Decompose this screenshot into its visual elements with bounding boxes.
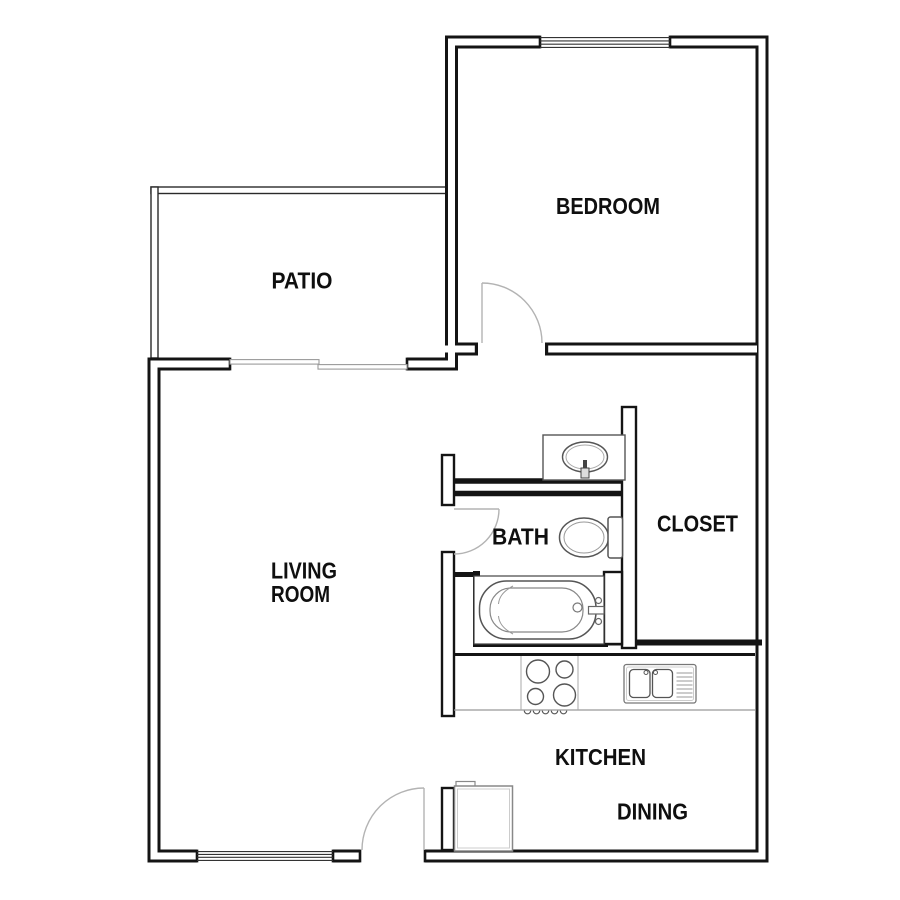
bathtub-icon: [474, 576, 604, 644]
living-window-opening: [197, 849, 333, 864]
main-walls-black: [154, 42, 762, 856]
knob: [533, 711, 539, 714]
entry-door: [362, 788, 424, 850]
floor-plan-drawing: BEDROOM PATIO LIVING ROOM BATH CLOSET KI…: [0, 0, 900, 900]
bath-left-wall: [442, 552, 454, 716]
toilet-tank: [608, 517, 623, 558]
tub-spout: [589, 607, 605, 615]
stove-icon: [524, 660, 575, 714]
knob: [560, 711, 566, 714]
entry-side-wall: [442, 788, 454, 850]
floor-plan-canvas: BEDROOM PATIO LIVING ROOM BATH CLOSET KI…: [0, 0, 900, 900]
sliding-door-panel: [230, 360, 319, 365]
bath-door-upper-jamb-wall: [442, 455, 454, 505]
faucet-base: [581, 468, 589, 478]
closet-label: CLOSET: [657, 511, 739, 537]
tub-handle: [596, 598, 602, 604]
door-arc: [362, 788, 424, 850]
burner: [528, 689, 544, 705]
tub-handle: [596, 619, 602, 625]
water-heater-icon: [455, 782, 513, 852]
knob: [524, 711, 530, 714]
burner: [527, 660, 550, 683]
drainboard: [677, 673, 693, 697]
entry-door-opening: [360, 849, 425, 864]
perimeter-wall: [154, 42, 762, 856]
knob: [542, 711, 548, 714]
kitchen-sink-icon: [624, 665, 696, 704]
dining-label: DINING: [617, 799, 688, 825]
burner: [554, 684, 576, 706]
bedroom-label: BEDROOM: [556, 193, 660, 219]
toilet-bowl: [560, 518, 609, 557]
bedroom-door: [482, 283, 542, 343]
knob: [551, 711, 557, 714]
toilet-icon: [560, 517, 623, 558]
door-arc: [482, 283, 542, 343]
vanity-sink-icon: [543, 435, 625, 480]
kitchen-counter: [454, 655, 755, 711]
living-room-label-line1: LIVING: [271, 558, 337, 584]
water-heater-body: [455, 786, 513, 851]
sliding-door-panel: [318, 365, 407, 370]
tub-closet-step-wall: [604, 572, 622, 644]
burner: [556, 661, 573, 678]
patio-top-wall: [151, 187, 451, 194]
stove-knobs: [524, 711, 566, 714]
kitchen-label: KITCHEN: [555, 744, 646, 770]
patio-label: PATIO: [272, 268, 333, 294]
living-room-label-line2: ROOM: [271, 581, 330, 607]
tub-outer: [480, 581, 597, 639]
bath-label: BATH: [492, 524, 549, 550]
patio-left-wall: [151, 187, 158, 358]
